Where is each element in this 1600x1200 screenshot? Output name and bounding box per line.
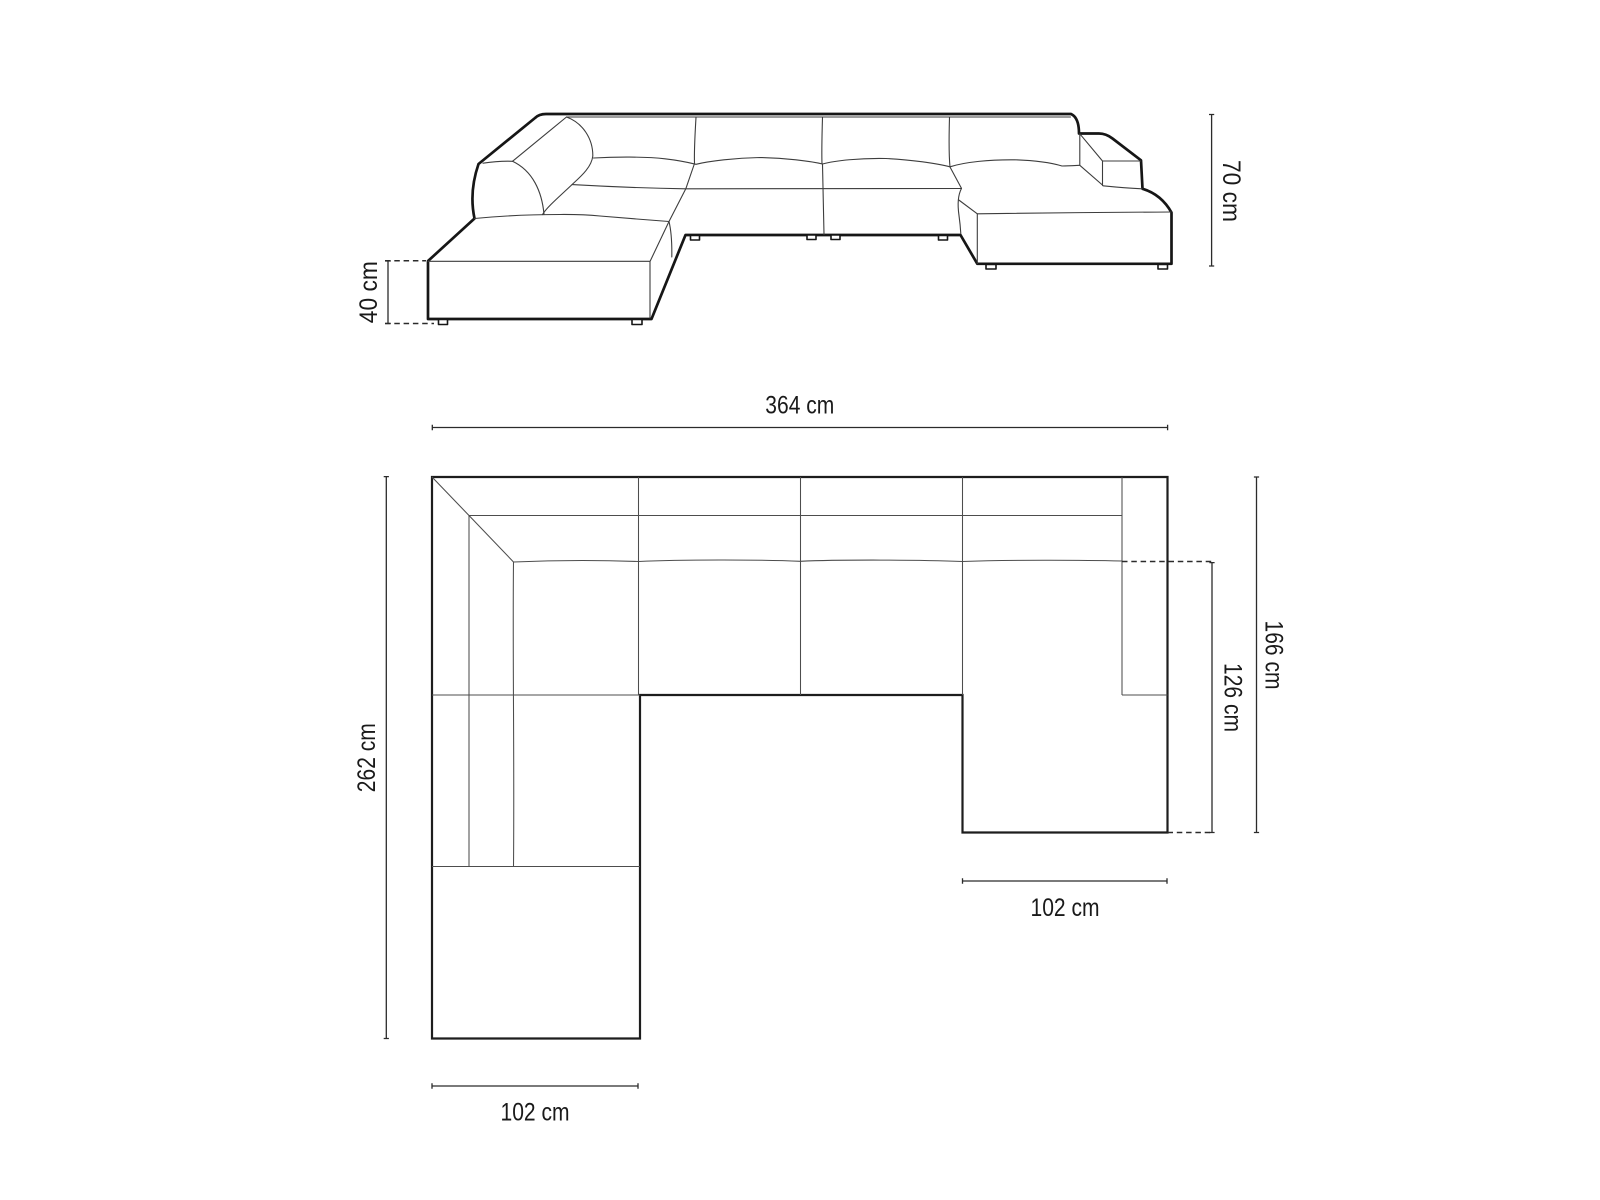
svg-text:166 cm: 166 cm — [1260, 621, 1288, 690]
svg-text:364 cm: 364 cm — [765, 392, 834, 420]
svg-text:126 cm: 126 cm — [1218, 663, 1246, 732]
svg-text:102 cm: 102 cm — [501, 1099, 570, 1127]
svg-text:40 cm: 40 cm — [355, 261, 383, 323]
svg-text:262 cm: 262 cm — [353, 723, 381, 792]
svg-text:70 cm: 70 cm — [1217, 160, 1245, 222]
svg-text:102 cm: 102 cm — [1031, 894, 1100, 922]
